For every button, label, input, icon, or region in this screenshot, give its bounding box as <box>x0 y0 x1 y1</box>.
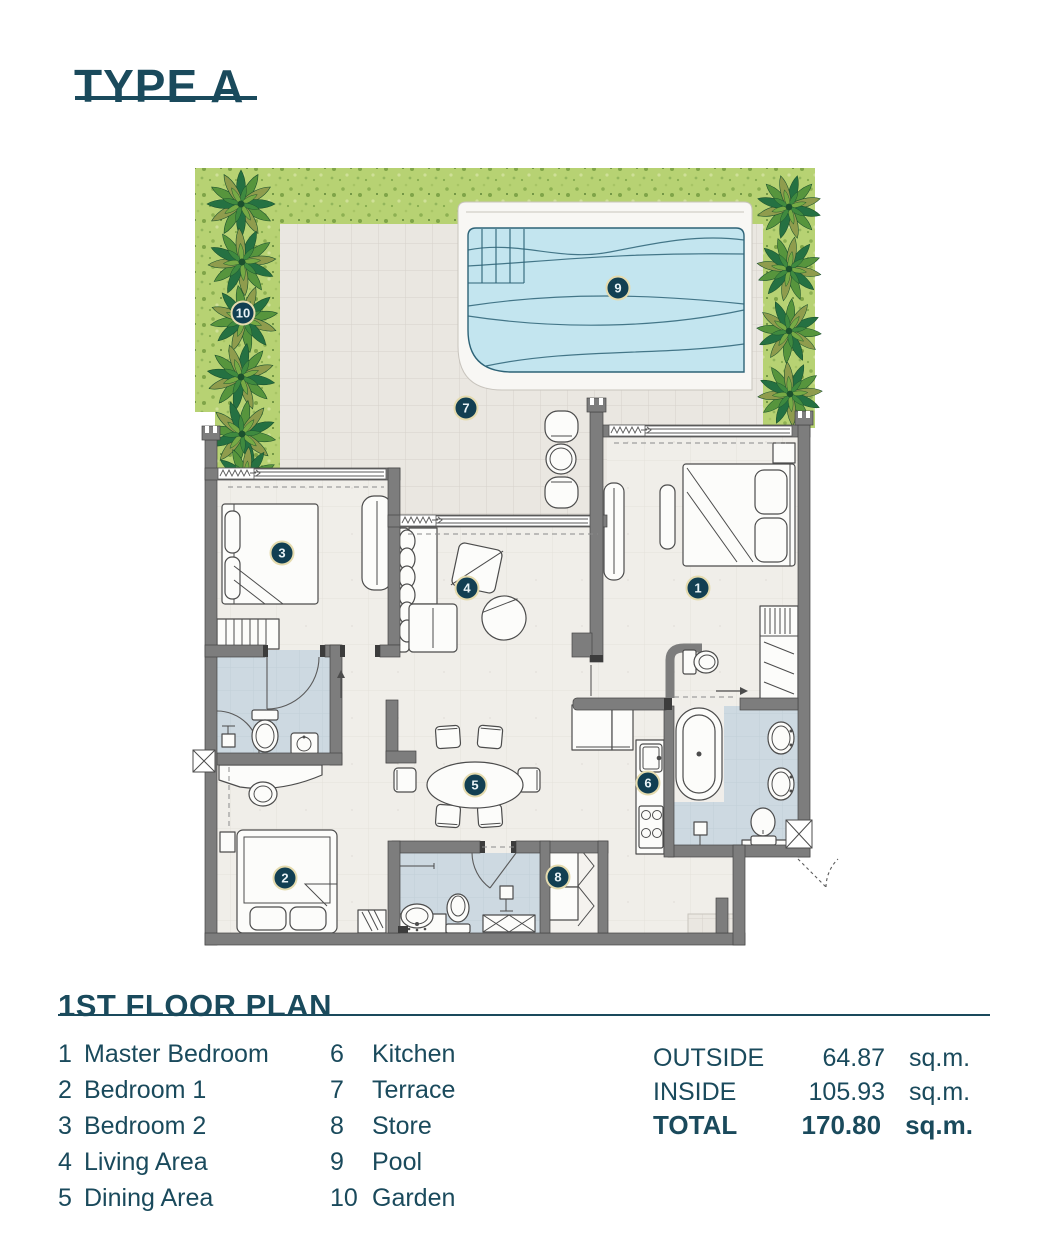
area-row-total: TOTAL 170.80 sq.m. <box>653 1109 973 1143</box>
marker-dining-area: 5 <box>464 774 487 797</box>
legend-item: 6 Kitchen <box>330 1036 570 1072</box>
svg-text:2: 2 <box>281 871 288 886</box>
marker-bedroom-1: 2 <box>274 867 297 890</box>
legend-label: Bedroom 2 <box>84 1108 330 1144</box>
legend-label: Bedroom 1 <box>84 1072 330 1108</box>
page-title: TYPE A <box>74 59 244 113</box>
svg-text:4: 4 <box>463 581 471 596</box>
marker-master-bedroom: 1 <box>687 577 710 600</box>
area-unit: sq.m. <box>909 1076 970 1110</box>
area-unit: sq.m. <box>909 1042 970 1076</box>
legend-number: 8 <box>330 1108 372 1144</box>
area-value: 170.80 <box>802 1109 882 1143</box>
legend-label: Store <box>372 1108 570 1144</box>
marker-pool: 9 <box>607 277 630 300</box>
svg-text:8: 8 <box>554 870 561 885</box>
legend-number: 7 <box>330 1072 372 1108</box>
room-legend: 1 Master Bedroom 2 Bedroom 1 3 Bedroom 2… <box>58 1036 570 1216</box>
legend-number: 2 <box>58 1072 84 1108</box>
pool <box>458 202 752 390</box>
legend-label: Terrace <box>372 1072 570 1108</box>
legend-column-2: 6 Kitchen 7 Terrace 8 Store 9 Pool 10 Ga… <box>330 1036 570 1216</box>
area-value: 105.93 <box>805 1076 885 1110</box>
legend-item: 5 Dining Area <box>58 1180 330 1216</box>
legend-number: 1 <box>58 1036 84 1072</box>
floor-plan: 1 2 3 4 5 6 7 8 <box>185 160 840 960</box>
svg-text:5: 5 <box>471 778 478 793</box>
area-label: INSIDE <box>653 1076 805 1110</box>
legend-number: 5 <box>58 1180 84 1216</box>
svg-text:3: 3 <box>278 546 285 561</box>
terrace-furniture <box>545 411 578 508</box>
area-unit: sq.m. <box>905 1109 973 1143</box>
svg-text:9: 9 <box>614 281 621 296</box>
legend-item: 1 Master Bedroom <box>58 1036 330 1072</box>
legend-item: 7 Terrace <box>330 1072 570 1108</box>
marker-garden: 10 <box>232 302 255 325</box>
legend-item: 4 Living Area <box>58 1144 330 1180</box>
legend-label: Dining Area <box>84 1180 330 1216</box>
legend-item: 9 Pool <box>330 1144 570 1180</box>
legend-item: 2 Bedroom 1 <box>58 1072 330 1108</box>
caption-rule <box>58 1014 990 1016</box>
legend-number: 10 <box>330 1180 372 1216</box>
legend-column-1: 1 Master Bedroom 2 Bedroom 1 3 Bedroom 2… <box>58 1036 330 1216</box>
area-row-outside: OUTSIDE 64.87 sq.m. <box>653 1042 973 1076</box>
svg-text:1: 1 <box>694 581 701 596</box>
area-label: OUTSIDE <box>653 1042 805 1076</box>
legend-label: Garden <box>372 1180 570 1216</box>
legend-number: 3 <box>58 1108 84 1144</box>
area-label: TOTAL <box>653 1109 802 1143</box>
marker-store: 8 <box>547 866 570 889</box>
legend-label: Kitchen <box>372 1036 570 1072</box>
legend-label: Living Area <box>84 1144 330 1180</box>
marker-living-area: 4 <box>456 577 479 600</box>
legend-item: 3 Bedroom 2 <box>58 1108 330 1144</box>
area-summary: OUTSIDE 64.87 sq.m. INSIDE 105.93 sq.m. … <box>653 1042 973 1143</box>
svg-text:6: 6 <box>644 776 651 791</box>
legend-item: 10 Garden <box>330 1180 570 1216</box>
svg-text:10: 10 <box>236 306 250 321</box>
marker-kitchen: 6 <box>637 772 660 795</box>
marker-terrace: 7 <box>455 397 478 420</box>
area-row-inside: INSIDE 105.93 sq.m. <box>653 1076 973 1110</box>
legend-number: 6 <box>330 1036 372 1072</box>
area-value: 64.87 <box>805 1042 885 1076</box>
svg-text:7: 7 <box>462 401 469 416</box>
title-underline <box>75 96 257 100</box>
plan-heading: 1ST FLOOR PLAN <box>58 988 332 1024</box>
legend-item: 8 Store <box>330 1108 570 1144</box>
legend-label: Master Bedroom <box>84 1036 330 1072</box>
marker-bedroom-2: 3 <box>271 542 294 565</box>
legend-number: 4 <box>58 1144 84 1180</box>
legend-label: Pool <box>372 1144 570 1180</box>
legend-number: 9 <box>330 1144 372 1180</box>
